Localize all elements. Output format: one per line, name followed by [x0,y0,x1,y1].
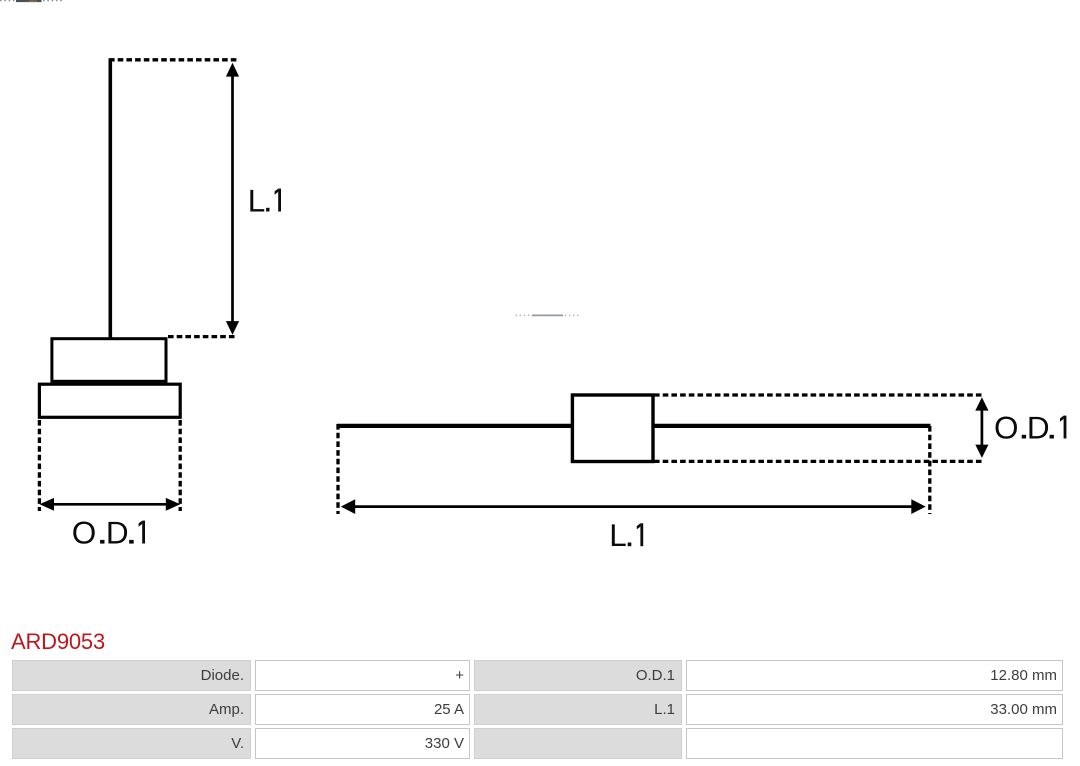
svg-text:O.D.: O.D. [72,515,135,551]
svg-text:O.D.: O.D. [994,410,1055,446]
svg-text:L: L [609,517,627,553]
svg-text:L: L [248,183,266,219]
